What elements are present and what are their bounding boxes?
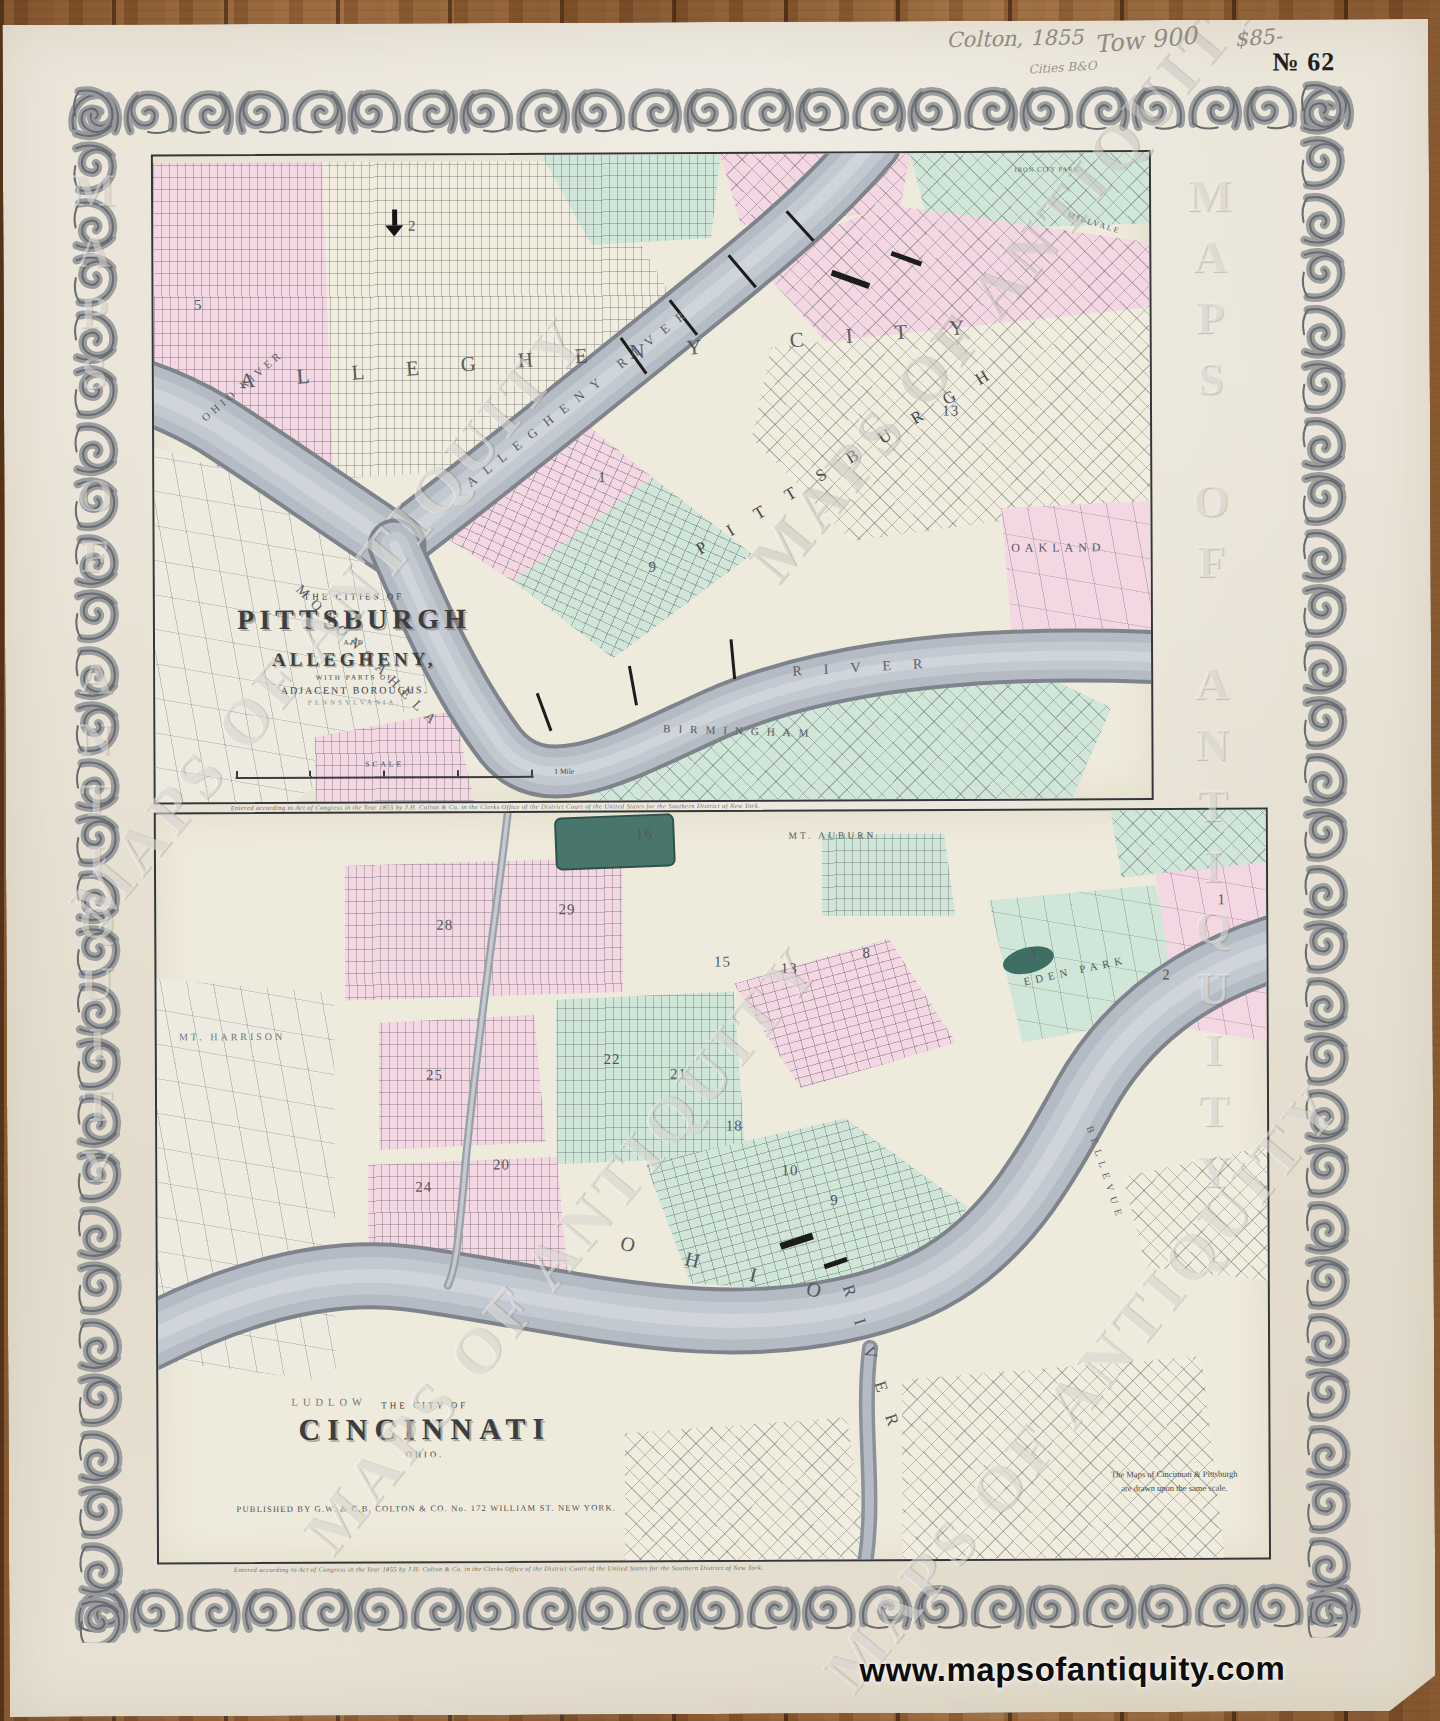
scroll-ornament [1297, 527, 1353, 583]
scroll-ornament [1137, 1578, 1193, 1634]
ward-number: 8 [862, 945, 871, 962]
scroll-ornament [69, 645, 125, 701]
pencil-note-inventory: Tow 900 [1093, 21, 1198, 58]
scroll-ornament [67, 85, 123, 141]
scroll-ornament [1299, 1143, 1355, 1199]
note-line: are drawn upon the same scale. [1086, 1481, 1264, 1495]
scroll-ornament [1297, 583, 1353, 639]
scroll-ornament [1300, 1367, 1356, 1423]
scroll-ornament [739, 82, 795, 138]
scroll-ornament [69, 589, 125, 645]
scroll-ornament [1296, 471, 1352, 527]
scroll-ornament [67, 141, 123, 197]
scroll-ornament [1298, 919, 1354, 975]
title-line: AND [210, 638, 499, 647]
title-line: THE CITIES OF [210, 591, 499, 602]
scroll-ornament [73, 1485, 129, 1541]
cincinnati-title-cartouche: THE CITY OF CINCINNATI OHIO. [280, 1400, 569, 1460]
scroll-ornament [1295, 247, 1351, 303]
scroll-ornament [1296, 415, 1352, 471]
photo-scene: Colton, 1855 Tow 900 Cities B&O $85- № 6… [0, 0, 1440, 1721]
scroll-ornament [1193, 1578, 1249, 1634]
scroll-ornament [745, 1580, 801, 1636]
ward-number: 9 [830, 1192, 839, 1209]
scroll-ornament [297, 1582, 353, 1638]
title-line: CINCINNATI [280, 1412, 569, 1447]
ward-number: 1 [598, 469, 607, 486]
scroll-ornament [72, 1429, 128, 1485]
copyright-line-bottom: Entered according to Act of Congress in … [234, 1564, 763, 1573]
scroll-ornament [465, 1581, 521, 1637]
scroll-ornament [1300, 1255, 1356, 1311]
title-line: OHIO. [281, 1449, 570, 1460]
scroll-ornament [913, 1579, 969, 1635]
scroll-ornament [1081, 1578, 1137, 1634]
title-line: ADJACENT BOROUGHS. [210, 684, 499, 696]
scroll-ornament [1297, 695, 1353, 751]
ward-number: 5 [194, 296, 203, 313]
scroll-ornament [67, 253, 123, 309]
ward-number: 1 [1217, 891, 1226, 908]
scroll-ornament [71, 1205, 127, 1261]
scroll-ornament [1298, 975, 1354, 1031]
pencil-note-cities: Cities B&O [1028, 59, 1097, 77]
publisher-imprint: PUBLISHED BY G.W. & C.B. COLTON & CO. No… [236, 1503, 616, 1515]
scroll-ornament [851, 81, 907, 137]
note-line: The Maps of Cincinnati & Pittsburgh [1085, 1468, 1263, 1482]
cincinnati-map-panel: OHIO RIVER LUDLOW EDEN PARK MT. AUBURN M… [154, 808, 1271, 1565]
scroll-ornament [235, 84, 291, 140]
ward-number: 15 [714, 953, 731, 970]
scroll-ornament [795, 81, 851, 137]
scroll-ornament [1301, 1535, 1357, 1591]
title-line: PENNSYLVANIA. [210, 698, 499, 707]
ward-number: 22 [603, 1051, 620, 1068]
ward-number: 16 [636, 826, 653, 843]
scroll-ornament [67, 197, 123, 253]
scroll-ornament [459, 83, 515, 139]
same-scale-note: The Maps of Cincinnati & Pittsburgh are … [1085, 1468, 1263, 1496]
border-ornament-right [1295, 79, 1362, 1637]
scroll-ornament [1297, 751, 1353, 807]
scroll-ornament [1299, 1199, 1355, 1255]
ward-number: 25 [426, 1067, 443, 1084]
scroll-ornament [1075, 80, 1131, 136]
ward-number: 24 [415, 1179, 432, 1196]
ward-number: 3 [1029, 944, 1038, 961]
scroll-ornament [123, 84, 179, 140]
scroll-ornament [353, 1581, 409, 1637]
scale-label: SCALE [235, 759, 534, 769]
scroll-ornament [72, 1373, 128, 1429]
scroll-ornament [179, 84, 235, 140]
scroll-ornament [1187, 80, 1243, 136]
scroll-ornament [68, 477, 124, 533]
website-url: www.mapsofantiquity.com [859, 1650, 1285, 1690]
ward-number: 13 [781, 960, 798, 977]
ward-number: 29 [558, 901, 575, 918]
scroll-ornament [1243, 79, 1299, 135]
scroll-ornament [683, 82, 739, 138]
scroll-ornament [347, 83, 403, 139]
scroll-ornament [1249, 1577, 1305, 1633]
ward-number: 21 [670, 1065, 687, 1082]
scroll-ornament [72, 1317, 128, 1373]
ward-number: 2 [1162, 966, 1171, 983]
scroll-ornament [71, 1093, 127, 1149]
title-line: PITTSBURGH [210, 603, 499, 636]
plate-number: № 62 [1272, 47, 1335, 77]
scroll-ornament [1295, 79, 1351, 135]
scroll-ornament [963, 81, 1019, 137]
ward-number: 20 [493, 1156, 510, 1173]
scroll-ornament [70, 813, 126, 869]
scroll-ornament [515, 83, 571, 139]
scroll-ornament [633, 1580, 689, 1636]
ward-number: 13 [942, 403, 959, 420]
scale-bar: SCALE 1 Mile [235, 759, 534, 779]
scroll-ornament [907, 81, 963, 137]
scroll-ornament [1297, 639, 1353, 695]
ward-number: 10 [781, 1162, 798, 1179]
ward-number: 9 [648, 559, 657, 576]
scroll-ornament [129, 1582, 185, 1638]
scale-bar-line [235, 770, 534, 779]
scroll-ornament [71, 1037, 127, 1093]
scroll-ornament [689, 1580, 745, 1636]
scale-unit: 1 Mile [554, 767, 574, 776]
border-ornament-bottom [73, 1577, 1361, 1643]
scroll-ornament [185, 1582, 241, 1638]
scroll-ornament [68, 309, 124, 365]
scroll-ornament [1019, 80, 1075, 136]
scroll-ornament [291, 84, 347, 140]
scroll-ornament [73, 1541, 129, 1597]
scroll-ornament [70, 757, 126, 813]
scroll-ornament [1025, 1578, 1081, 1634]
title-line: THE CITY OF [280, 1400, 569, 1411]
border-ornament-left [67, 85, 134, 1643]
scroll-ornament [73, 1597, 129, 1643]
ward-number: 18 [726, 1118, 743, 1135]
scroll-ornament [70, 981, 126, 1037]
scroll-ornament [72, 1261, 128, 1317]
border-ornament-top [67, 79, 1355, 145]
scroll-ornament [403, 83, 459, 139]
ward-number: 28 [436, 917, 453, 934]
scroll-ornament [69, 701, 125, 757]
scroll-ornament [1300, 1311, 1356, 1367]
scroll-ornament [1296, 359, 1352, 415]
scroll-ornament [801, 1579, 857, 1635]
scroll-ornament [71, 1149, 127, 1205]
scroll-ornament [1295, 135, 1351, 191]
scroll-ornament [857, 1579, 913, 1635]
scroll-ornament [70, 925, 126, 981]
scroll-ornament [627, 82, 683, 138]
scroll-ornament [1299, 1031, 1355, 1087]
scroll-ornament [521, 1581, 577, 1637]
pittsburgh-title-cartouche: THE CITIES OF PITTSBURGH AND ALLEGHENY, … [210, 591, 499, 707]
scroll-ornament [571, 82, 627, 138]
scroll-ornament [68, 365, 124, 421]
map-sheet: Colton, 1855 Tow 900 Cities B&O $85- № 6… [2, 19, 1435, 1717]
ward-number: 2 [408, 218, 417, 235]
scroll-ornament [1298, 863, 1354, 919]
scroll-ornament [969, 1579, 1025, 1635]
pencil-note-attribution: Colton, 1855 [946, 25, 1083, 52]
scroll-ornament [241, 1582, 297, 1638]
scroll-ornament [1301, 1479, 1357, 1535]
scroll-ornament [1301, 1591, 1357, 1637]
scroll-ornament [409, 1581, 465, 1637]
scroll-ornament [1298, 807, 1354, 863]
scroll-ornament [1295, 191, 1351, 247]
scroll-ornament [1131, 80, 1187, 136]
scroll-ornament [577, 1580, 633, 1636]
title-line: WITH PARTS OF [210, 673, 499, 682]
title-line: ALLEGHENY, [210, 648, 499, 671]
scroll-ornament [1296, 303, 1352, 359]
scroll-ornament [1299, 1087, 1355, 1143]
pittsburgh-map-panel: ALLEGHENY CITY OHIO RIVER ALLEGHENY RIVE… [151, 150, 1154, 804]
scroll-ornament [70, 869, 126, 925]
scroll-ornament [69, 533, 125, 589]
scroll-ornament [1300, 1423, 1356, 1479]
scroll-ornament [68, 421, 124, 477]
